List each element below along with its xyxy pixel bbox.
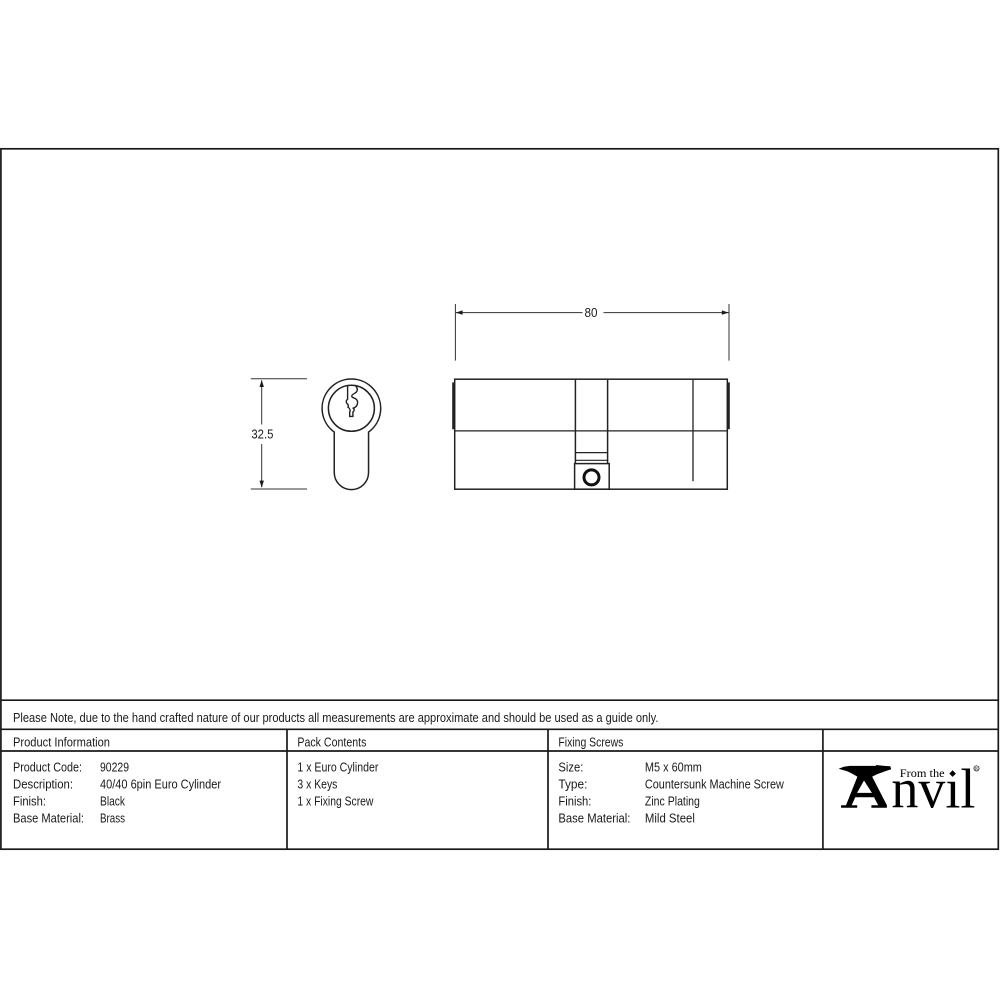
svg-text:Fixing Screws: Fixing Screws [558,735,623,750]
svg-text:Black: Black [100,793,125,808]
svg-text:Type:: Type: [558,776,587,791]
svg-text:Zinc Plating: Zinc Plating [645,793,700,808]
svg-text:Base Material:: Base Material: [558,810,630,825]
svg-text:Base Material:: Base Material: [13,810,84,825]
svg-text:1 x Fixing Screw: 1 x Fixing Screw [297,793,373,808]
svg-text:nvıl: nvıl [891,758,975,820]
svg-text:3 x Keys: 3 x Keys [297,776,337,791]
svg-text:Size:: Size: [558,759,583,774]
svg-text:Brass: Brass [100,810,125,825]
svg-text:Product Information: Product Information [13,735,110,750]
svg-text:Please Note, due to the hand c: Please Note, due to the hand crafted nat… [13,710,658,725]
svg-text:Description:: Description: [13,776,73,791]
svg-text:Mild Steel: Mild Steel [645,810,695,825]
svg-text:Pack Contents: Pack Contents [297,735,366,750]
svg-text:Countersunk Machine Screw: Countersunk Machine Screw [645,776,784,791]
svg-text:90229: 90229 [100,759,129,774]
svg-text:R: R [975,766,978,771]
svg-text:1 x Euro Cylinder: 1 x Euro Cylinder [297,759,379,774]
svg-text:M5 x 60mm: M5 x 60mm [645,759,702,774]
svg-text:32.5: 32.5 [251,427,273,442]
svg-text:40/40 6pin Euro Cylinder: 40/40 6pin Euro Cylinder [100,776,222,791]
svg-text:Product Code:: Product Code: [13,759,82,774]
svg-text:Finish:: Finish: [13,793,46,808]
svg-text:80: 80 [585,305,598,320]
svg-text:Finish:: Finish: [558,793,591,808]
